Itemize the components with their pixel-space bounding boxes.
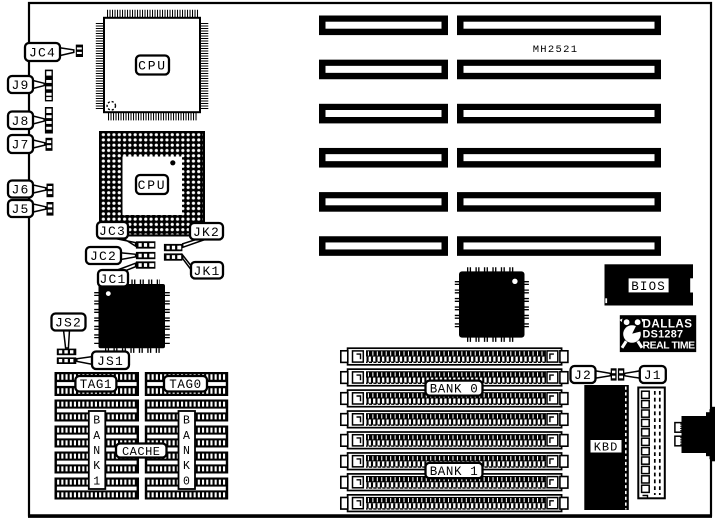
svg-text:KBD: KBD [594, 441, 619, 455]
svg-text:N: N [183, 445, 190, 458]
svg-text:CACHE: CACHE [122, 445, 161, 459]
svg-text:J2: J2 [574, 368, 592, 383]
svg-text:JK2: JK2 [193, 225, 220, 240]
svg-text:JC3: JC3 [99, 224, 126, 239]
svg-text:JS1: JS1 [97, 354, 124, 369]
svg-text:BIOS: BIOS [631, 280, 666, 294]
svg-text:MH2521: MH2521 [533, 44, 579, 56]
svg-text:CPU: CPU [138, 178, 167, 193]
svg-text:B: B [183, 415, 190, 428]
svg-text:J9: J9 [11, 78, 29, 93]
svg-text:J6: J6 [11, 183, 29, 198]
svg-text:J1: J1 [644, 368, 662, 383]
svg-text:1: 1 [93, 475, 100, 488]
svg-text:A: A [183, 430, 190, 443]
svg-text:N: N [93, 445, 100, 458]
svg-text:JC1: JC1 [99, 272, 126, 287]
svg-text:A: A [93, 430, 100, 443]
svg-text:BANK 1: BANK 1 [430, 465, 479, 479]
svg-text:JC4: JC4 [29, 46, 56, 61]
svg-text:BANK 0: BANK 0 [430, 383, 479, 397]
svg-text:K: K [183, 460, 190, 473]
svg-text:J5: J5 [11, 202, 29, 217]
svg-text:K: K [93, 460, 100, 473]
svg-text:JK1: JK1 [193, 264, 220, 279]
svg-text:TAG0: TAG0 [169, 378, 201, 392]
svg-text:J7: J7 [11, 138, 29, 153]
svg-text:0: 0 [183, 475, 190, 488]
svg-text:J8: J8 [11, 114, 29, 129]
svg-text:B: B [93, 415, 100, 428]
svg-text:JS2: JS2 [55, 316, 82, 331]
svg-text:JC2: JC2 [90, 249, 117, 264]
svg-text:TAG1: TAG1 [80, 378, 112, 392]
svg-text:CPU: CPU [138, 59, 167, 74]
svg-text:REAL TIME: REAL TIME [643, 340, 696, 351]
svg-text:DS1287: DS1287 [643, 328, 684, 340]
